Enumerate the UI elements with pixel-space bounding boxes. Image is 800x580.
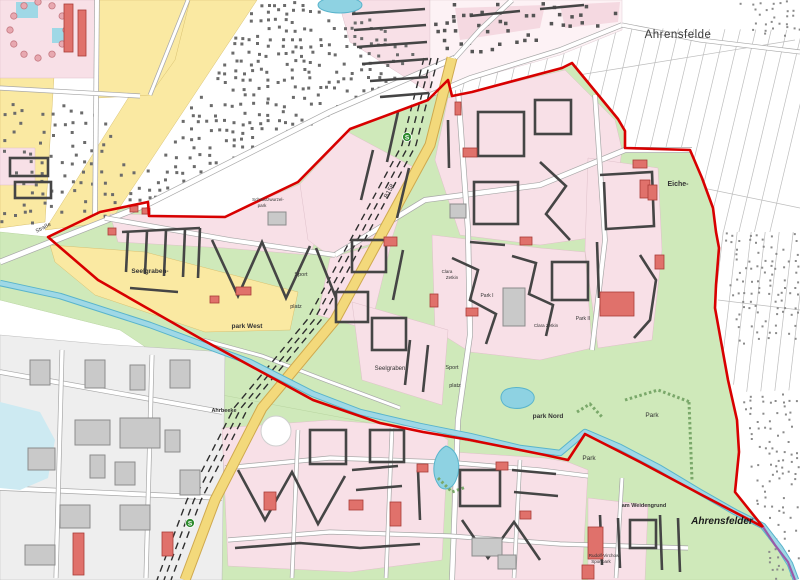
map-label: Sport <box>294 272 308 278</box>
map-label: Park <box>645 412 659 419</box>
map-label: Ahrensfelde <box>645 29 712 41</box>
sbahn-station-icon: S <box>186 519 195 528</box>
map-label: platz <box>290 304 302 310</box>
map-container: SSAhrensfeldeEiche-Seelgraben-park WestS… <box>0 0 800 580</box>
map-label: Ahrensfelder <box>690 516 754 527</box>
map-label: am Weidengrund <box>622 503 667 509</box>
map-label: Seelgraben- <box>131 268 168 275</box>
map-label: Eiche- <box>667 181 689 188</box>
map-label: Zetkin <box>446 275 459 280</box>
map-label: park West <box>232 323 264 330</box>
map-label: Seelgraben <box>375 366 406 372</box>
map-label: Rudolf-Virchow <box>589 553 620 558</box>
map-label: Park I <box>480 293 493 299</box>
map-label: park <box>258 203 268 208</box>
map-label: Clara Zetkin <box>534 323 559 328</box>
map-label: Park <box>582 455 596 462</box>
map-label: Clara <box>442 269 453 274</box>
svg-text:S: S <box>405 134 410 141</box>
map-image: SSAhrensfeldeEiche-Seelgraben-park WestS… <box>0 0 800 580</box>
sbahn-station-icon: S <box>403 133 412 142</box>
map-label: Ahrbeeke <box>211 408 236 414</box>
map-label: Sportpark <box>591 559 611 564</box>
map-label: platz <box>449 383 461 389</box>
map-label: Sport <box>445 365 459 371</box>
map-label: park Nord <box>533 413 564 420</box>
map-label: Park II <box>576 316 590 322</box>
svg-text:S: S <box>188 520 193 527</box>
map-label: Schwarzwurzel- <box>252 197 284 202</box>
